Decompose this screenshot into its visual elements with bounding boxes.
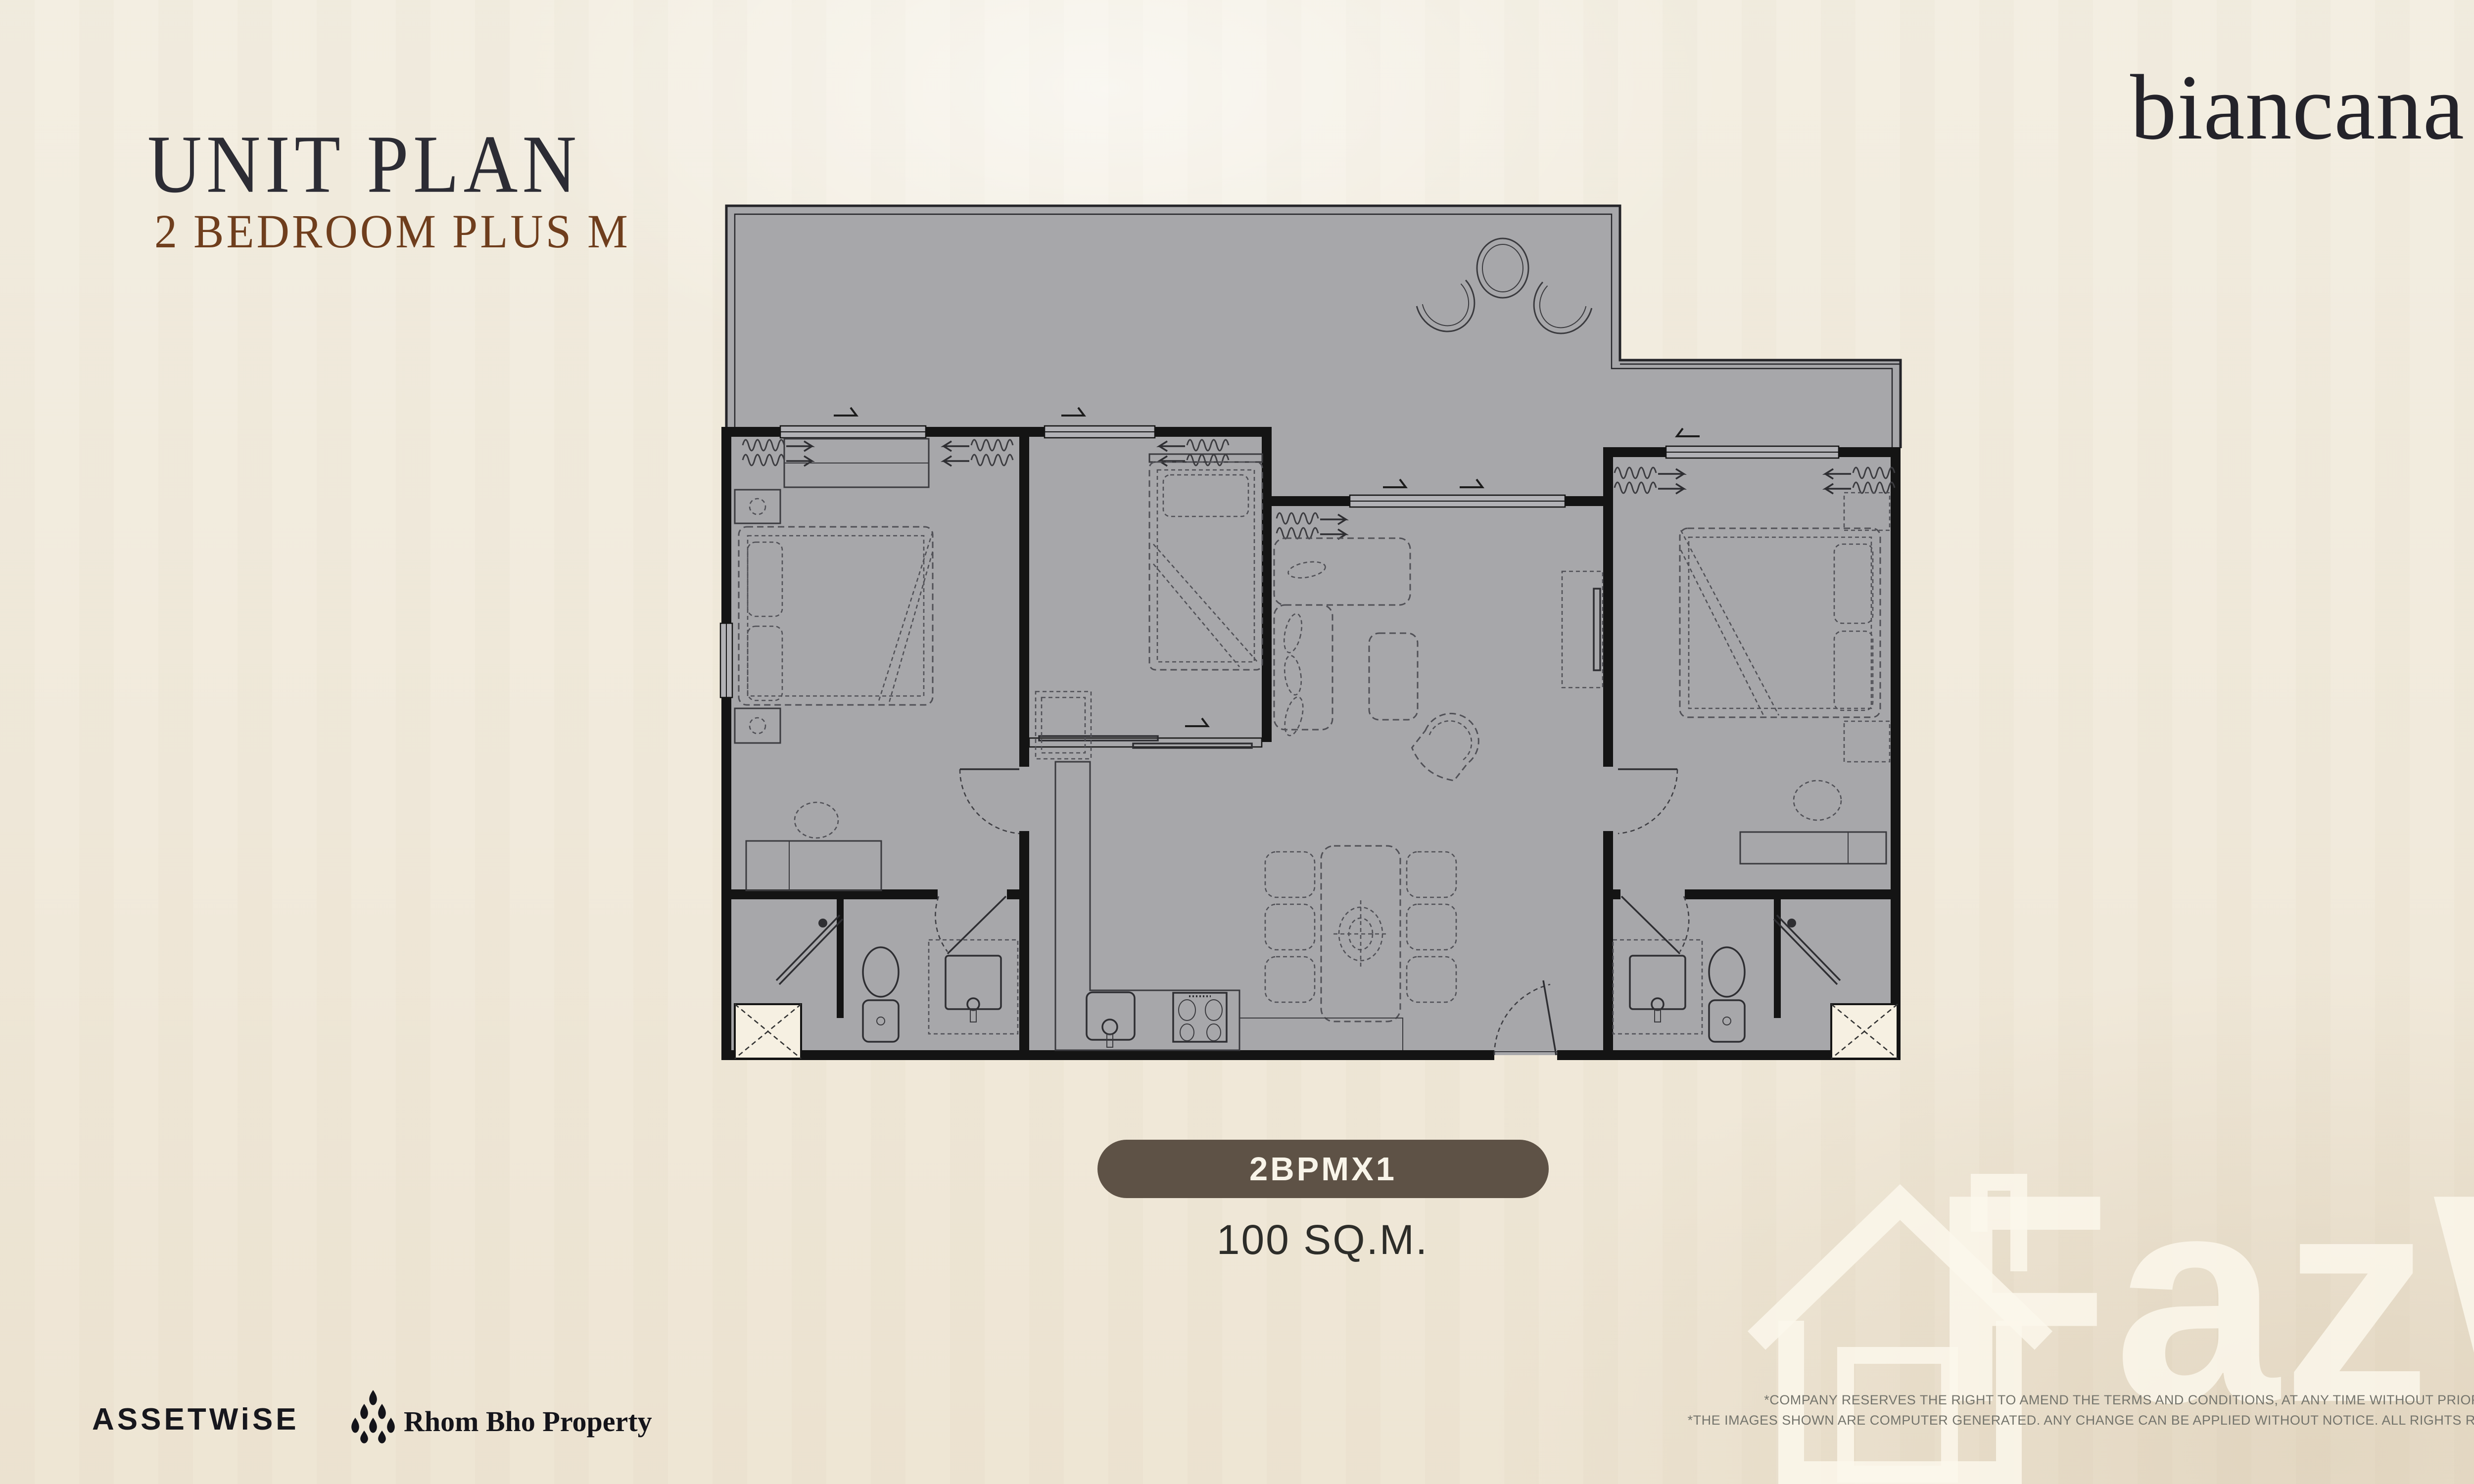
disclaimer-line-2: *THE IMAGES SHOWN ARE COMPUTER GENERATED… bbox=[1688, 1410, 2474, 1431]
rhombho-leaf-icon bbox=[349, 1389, 397, 1446]
unit-code-badge: 2BPMX1 bbox=[1097, 1140, 1549, 1198]
rhombho-logo: Rhom Bho Property bbox=[404, 1405, 652, 1438]
biancana-logo: biancana bbox=[2130, 53, 2465, 161]
disclaimer-line-1: *COMPANY RESERVES THE RIGHT TO AMEND THE… bbox=[1688, 1390, 2474, 1410]
floor-plan-drawing bbox=[715, 198, 1903, 1064]
apartment-floor bbox=[726, 206, 1901, 1055]
floor-plan bbox=[715, 198, 1903, 1064]
unit-plan-page: FazWaz UNIT PLAN 2 BEDROOM PLUS M bianca… bbox=[0, 0, 2474, 1484]
page-title: UNIT PLAN bbox=[147, 117, 581, 211]
unit-area: 100 SQ.M. bbox=[1075, 1216, 1570, 1264]
page-subtitle: 2 BEDROOM PLUS M bbox=[154, 204, 630, 259]
assetwise-logo: ASSETWiSE bbox=[92, 1402, 299, 1437]
disclaimer: *COMPANY RESERVES THE RIGHT TO AMEND THE… bbox=[1688, 1390, 2474, 1431]
unit-code: 2BPMX1 bbox=[1249, 1150, 1397, 1188]
